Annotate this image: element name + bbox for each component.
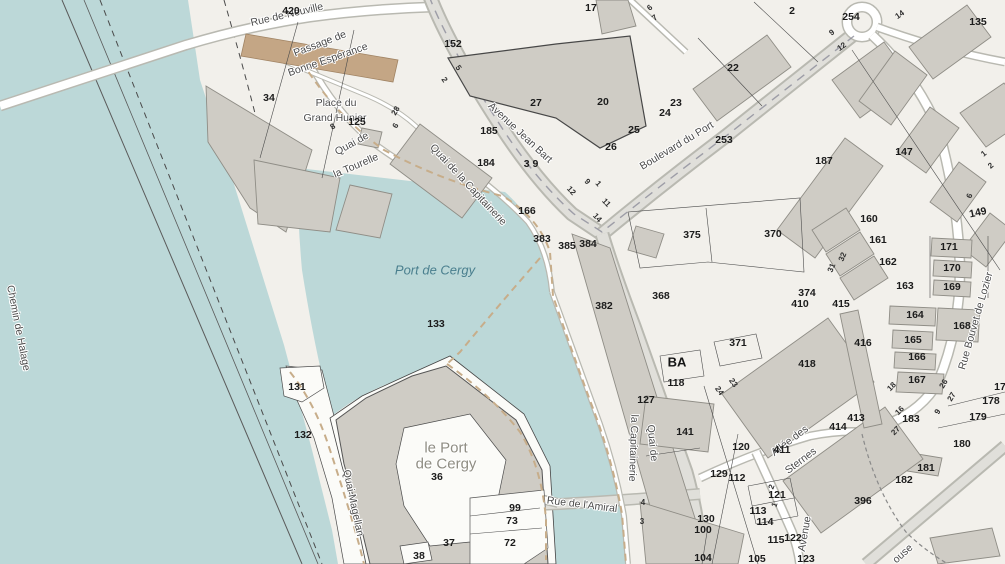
map-base-layer [0,0,1005,564]
map-canvas[interactable]: Rue de NeuvillePassage deBonne Espérance… [0,0,1005,564]
